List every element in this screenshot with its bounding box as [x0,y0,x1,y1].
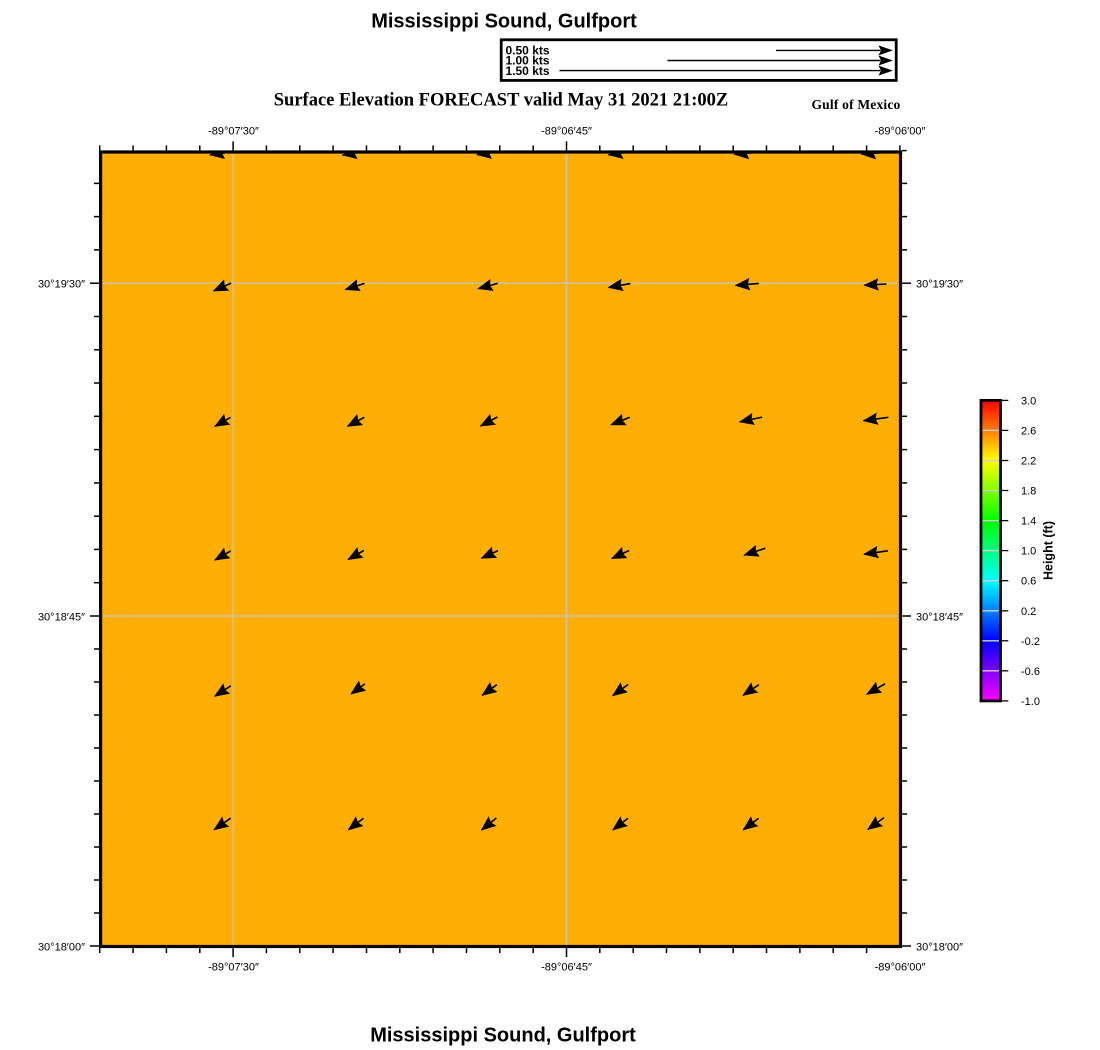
svg-text:-1.0: -1.0 [1021,696,1040,708]
svg-text:0.6: 0.6 [1021,576,1036,588]
svg-text:30°18′45″: 30°18′45″ [916,612,963,624]
svg-text:1.8: 1.8 [1021,486,1036,498]
svg-text:0.2: 0.2 [1021,606,1036,618]
svg-text:-89°06′45″: -89°06′45″ [541,126,592,138]
svg-text:-0.2: -0.2 [1021,636,1040,648]
svg-text:30°19′30″: 30°19′30″ [38,279,85,291]
svg-text:30°19′30″: 30°19′30″ [916,279,963,291]
svg-text:-0.6: -0.6 [1021,666,1040,678]
svg-text:1.50 kts: 1.50 kts [506,64,550,78]
svg-text:Mississippi Sound, Gulfport: Mississippi Sound, Gulfport [371,10,637,32]
svg-text:-89°06′45″: -89°06′45″ [541,962,592,974]
svg-text:Height (ft): Height (ft) [1042,521,1056,580]
svg-text:Mississippi Sound, Gulfport: Mississippi Sound, Gulfport [370,1025,636,1047]
svg-text:3.0: 3.0 [1021,395,1036,407]
svg-text:1.4: 1.4 [1021,516,1036,528]
svg-text:30°18′45″: 30°18′45″ [38,612,85,624]
svg-text:Surface Elevation FORECAST val: Surface Elevation FORECAST valid May 31 … [274,91,728,111]
svg-text:30°18′00″: 30°18′00″ [38,942,85,954]
svg-text:-89°07′30″: -89°07′30″ [208,962,259,974]
svg-text:-89°06′00″: -89°06′00″ [875,126,926,138]
svg-text:2.2: 2.2 [1021,456,1036,468]
svg-text:-89°07′30″: -89°07′30″ [208,126,259,138]
svg-text:30°18′00″: 30°18′00″ [916,942,963,954]
svg-text:2.6: 2.6 [1021,425,1036,437]
svg-text:1.0: 1.0 [1021,546,1036,558]
svg-text:Gulf of Mexico: Gulf of Mexico [811,97,900,112]
svg-text:-89°06′00″: -89°06′00″ [875,962,926,974]
